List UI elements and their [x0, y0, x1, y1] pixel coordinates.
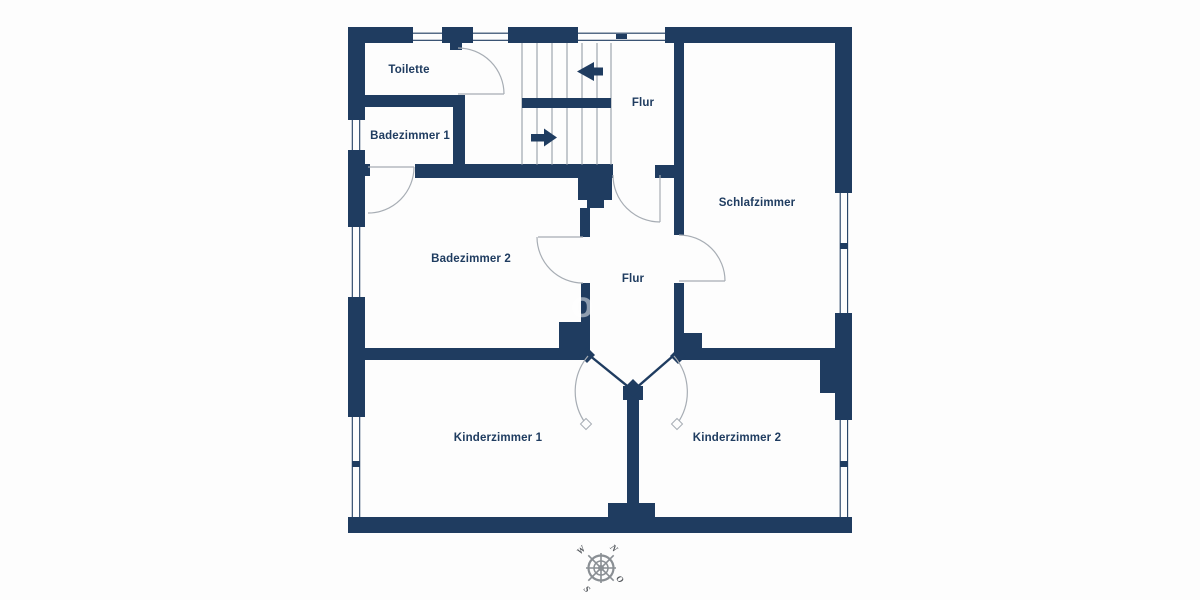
wall-flur-nw-corner — [578, 178, 612, 200]
stair-arrow-up-icon — [577, 62, 603, 81]
room-label-kinderzimmer-2: Kinderzimmer 2 — [693, 432, 781, 444]
room-label-kinderzimmer-1: Kinderzimmer 1 — [454, 432, 542, 444]
door-swing-arc — [613, 175, 660, 222]
door-schlafzimmer — [679, 235, 725, 281]
door-swing-arc — [674, 356, 687, 424]
door-swing-arc — [575, 356, 588, 424]
window-mullion — [616, 34, 627, 39]
door-arc-end-diamond — [581, 419, 592, 430]
wall-badezimmer2-se-block — [559, 322, 590, 350]
wall-kinderzimmer-divider — [627, 400, 639, 503]
door-badezimmer1-badezimmer2 — [368, 167, 414, 213]
floor-plan-svg — [0, 0, 1200, 600]
interior-walls — [348, 38, 852, 517]
room-label-flur-upper: Flur — [632, 97, 654, 109]
room-label-schlafzimmer: Schlafzimmer — [719, 197, 796, 209]
door-swing-arc — [458, 48, 504, 94]
wall-mid-divider-left — [348, 348, 584, 360]
door-swing-arc — [368, 167, 414, 213]
door-badezimmer2-flur — [537, 237, 583, 283]
wall-right-1 — [835, 27, 852, 193]
wall-badezimmer2-east-lower — [581, 283, 590, 323]
window-mullion — [840, 243, 848, 249]
window-mullion — [352, 461, 360, 467]
door-stairhall-flur — [613, 175, 660, 222]
wall-right-stub — [820, 360, 835, 393]
door-leaf — [589, 355, 631, 389]
room-label-badezimmer-2: Badezimmer 2 — [431, 253, 511, 265]
wall-top-4 — [665, 27, 852, 43]
door-arc-end-diamond — [672, 419, 683, 430]
wall-badezimmer2-east-upper — [580, 208, 590, 237]
room-label-badezimmer-1: Badezimmer 1 — [370, 130, 450, 142]
door-toilette — [458, 48, 504, 94]
wall-left-2 — [348, 150, 365, 227]
wall-kinderzimmer-pedestal — [608, 503, 655, 517]
wall-flur-nw-foot — [587, 200, 604, 208]
floor-plan-canvas: Toilette Badezimmer 1 Flur Schlafzimmer … — [0, 0, 1200, 600]
wall-schlafzimmer-west-upper — [674, 43, 684, 235]
wall-top-3 — [508, 27, 578, 43]
wall-badezimmer1-east — [453, 95, 465, 168]
compass-spokes — [586, 553, 616, 583]
stair-landing-wall — [522, 98, 611, 108]
wall-mid-divider-right — [676, 348, 852, 360]
stair-arrow-down-icon — [531, 129, 557, 147]
room-label-flur-central: Flur — [622, 273, 644, 285]
window-mullion — [840, 461, 848, 467]
wall-badezimmer-divider-a — [348, 164, 370, 176]
room-label-toilette: Toilette — [388, 64, 429, 76]
wall-badezimmer-divider-b — [415, 164, 613, 178]
door-swing-arc — [679, 235, 725, 281]
compass-rose-icon — [586, 553, 616, 583]
door-swing-arc — [537, 237, 583, 283]
staircase — [522, 43, 611, 165]
wall-right-2 — [835, 313, 852, 420]
wall-toilette-south — [348, 95, 457, 107]
wall-bottom — [348, 517, 852, 533]
door-leaf — [635, 356, 673, 389]
